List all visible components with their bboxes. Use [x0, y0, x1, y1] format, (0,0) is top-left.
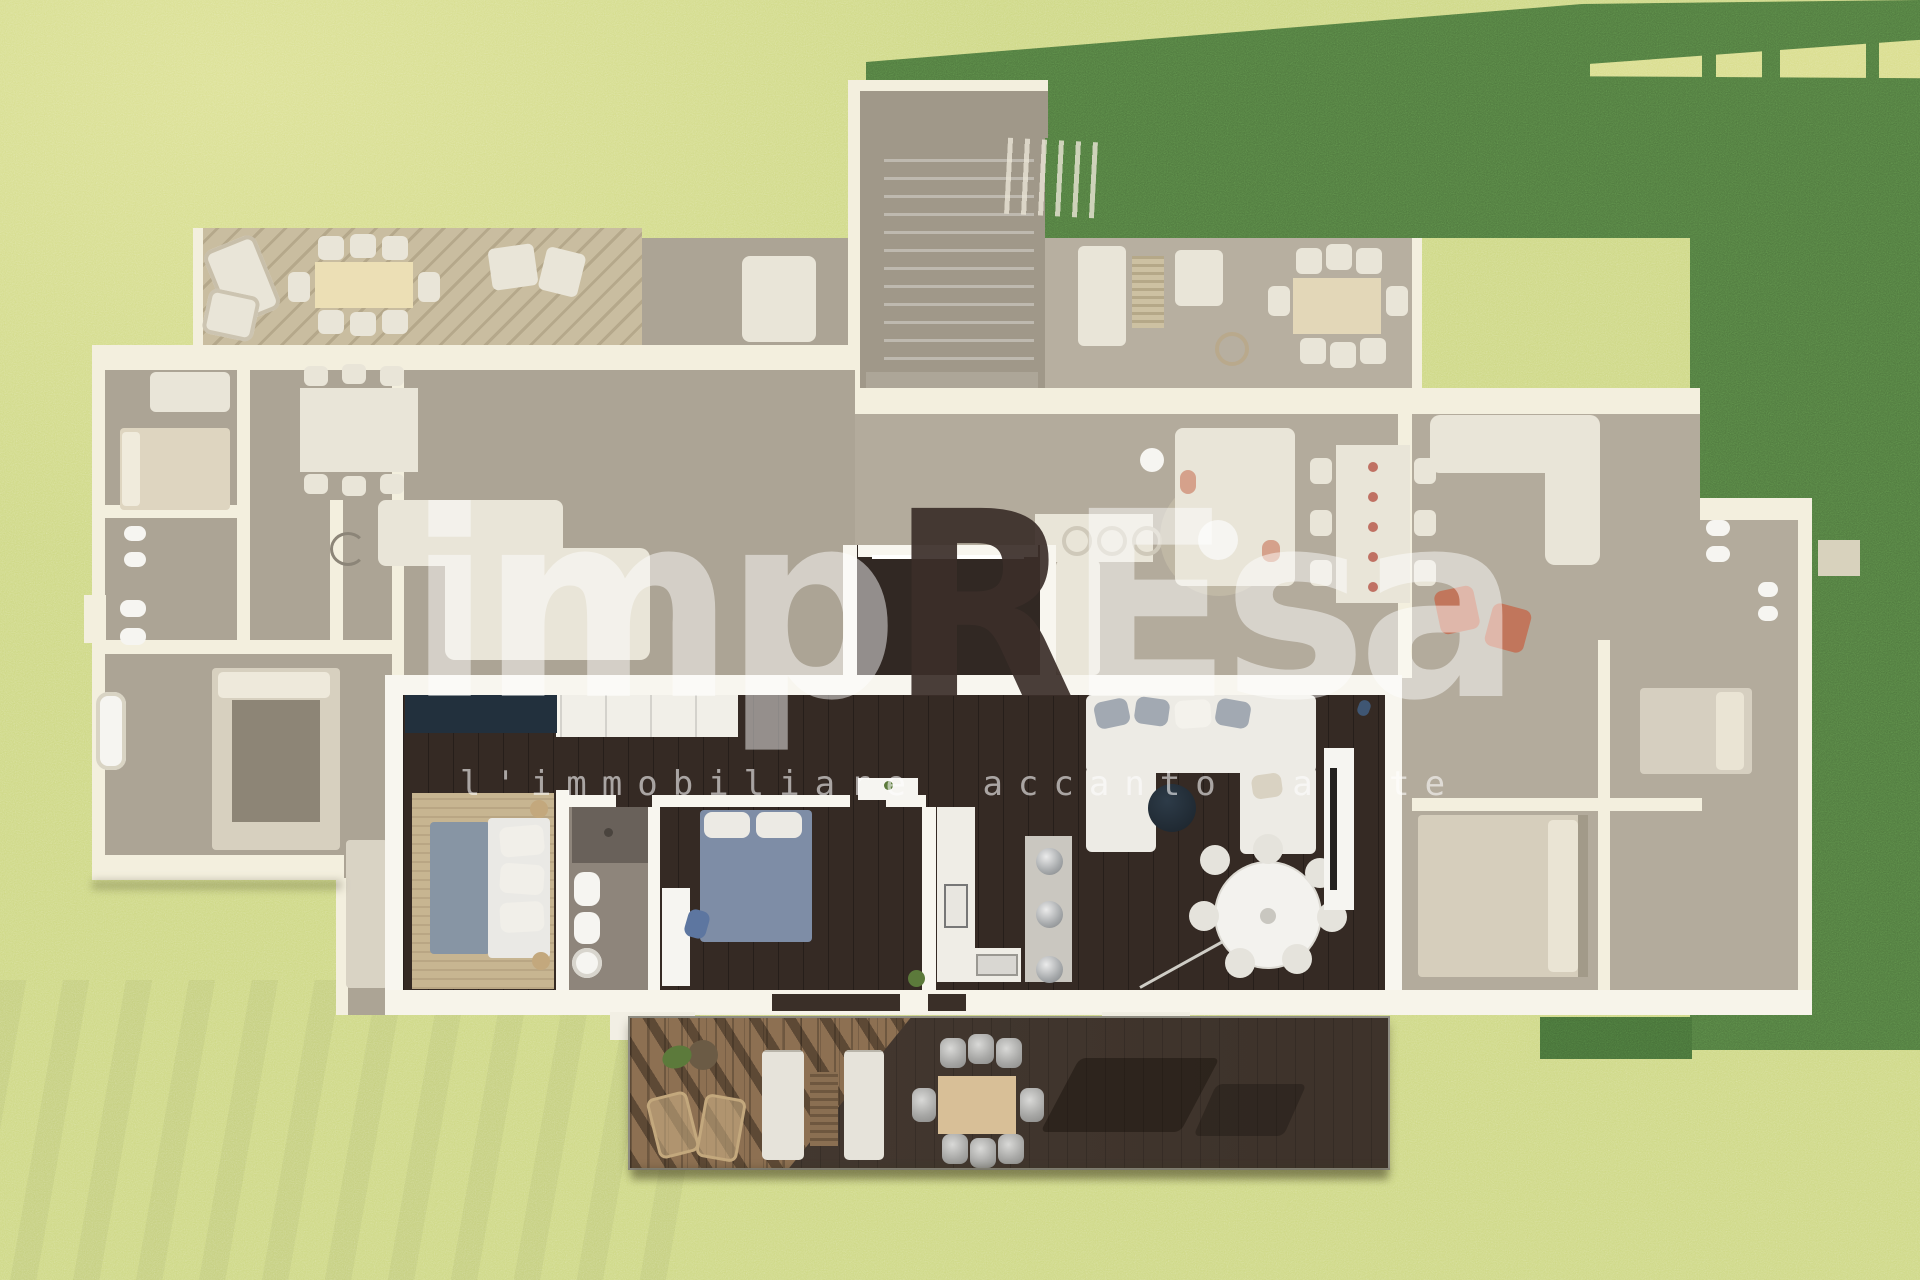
- left-wing-top-wall: [92, 345, 855, 370]
- unit-wall-bed2: [922, 807, 936, 992]
- bed2-pillow: [704, 812, 750, 838]
- rdeck-chair: [1360, 338, 1386, 364]
- lw-chair: [380, 366, 404, 386]
- watermark-brand: impREsa: [58, 478, 1863, 736]
- terrace-plant-pot: [688, 1040, 718, 1070]
- rdeck-chair: [1268, 286, 1290, 316]
- rdeck-armchair: [1175, 250, 1223, 306]
- terrace-chair: [970, 1138, 996, 1168]
- deck-chair: [382, 236, 408, 260]
- terrace-slat-table: [810, 1072, 838, 1146]
- lw-chair: [342, 364, 366, 384]
- rdeck-chair: [1326, 244, 1352, 270]
- rdeck-chair: [1356, 248, 1382, 274]
- brand-r: R: [889, 457, 1066, 757]
- rdeck-sofa: [1078, 246, 1126, 346]
- floorplan-render: impREsa l'immobiliare accanto a te: [0, 0, 1920, 1280]
- bathroom-bidet: [574, 912, 600, 944]
- master-bed-throw: [430, 822, 490, 954]
- deck-dining-table: [315, 262, 413, 308]
- dining-centerpiece: [1260, 908, 1276, 924]
- left-wing-bottom-wall: [92, 855, 344, 880]
- entry-bridge-edge: [848, 80, 1048, 91]
- rdeck-chair: [1386, 286, 1408, 316]
- mid-ghost-sofa: [742, 256, 816, 342]
- rdeck-slat-table: [1132, 256, 1164, 328]
- dining-chair: [1200, 845, 1230, 875]
- kitchen-hob: [944, 884, 968, 928]
- deck-chair: [318, 310, 344, 334]
- rdeck-chair: [1330, 342, 1356, 368]
- master-pillow: [499, 863, 545, 896]
- deck-chair: [382, 310, 408, 334]
- rw-bed1-pillows: [1548, 820, 1578, 972]
- bed2-plant: [908, 970, 925, 987]
- deck-chair: [350, 312, 376, 336]
- terrace-chair: [942, 1134, 968, 1164]
- terrace-chair: [968, 1034, 994, 1064]
- dining-chair: [1282, 944, 1312, 974]
- deck-chair: [318, 236, 344, 260]
- terrace-sofa: [844, 1050, 884, 1160]
- dining-chair: [1189, 901, 1219, 931]
- rdeck-side-table: [1215, 332, 1249, 366]
- bed2-pillow: [756, 812, 802, 838]
- terrace-chair: [940, 1038, 966, 1068]
- bed2-desk: [662, 888, 690, 986]
- deck-chair: [418, 272, 440, 302]
- rw-bed1-headboard: [1578, 815, 1588, 977]
- unit-wall-master2: [556, 790, 569, 992]
- brand-e: E: [1067, 457, 1223, 757]
- terrace-dining-table: [938, 1076, 1016, 1134]
- brand-sa: sa: [1223, 457, 1512, 757]
- master-pillow: [499, 824, 545, 858]
- lawn-shadow-terrace: [632, 1168, 1388, 1180]
- right-wing-top-wall: [855, 388, 1700, 414]
- left-deck-edge: [193, 228, 203, 347]
- bottom-door-gap2: [928, 994, 966, 1011]
- master-pillow: [499, 901, 545, 933]
- kitchen-stool: [1036, 901, 1063, 928]
- deck-chair: [350, 234, 376, 258]
- terrace-deck: [630, 1018, 1388, 1168]
- lw-wardrobe: [150, 372, 230, 412]
- kitchen-sink: [976, 954, 1018, 976]
- rdeck-chair: [1296, 248, 1322, 274]
- shower-drain: [604, 828, 613, 837]
- terrace-chair: [912, 1088, 936, 1122]
- terrace-sofa: [762, 1050, 804, 1160]
- kitchen-counter-v: [937, 807, 975, 957]
- unit-bottom-wall: [385, 990, 1812, 1015]
- watermark-tagline: l'immobiliare accanto a te: [0, 764, 1920, 804]
- dining-chair: [1253, 834, 1283, 864]
- bathroom-sink: [572, 948, 602, 978]
- lw-bed3: [346, 840, 388, 988]
- brand-imp: imp: [408, 457, 889, 757]
- terrace-chair: [998, 1134, 1024, 1164]
- bridge-left-wall: [848, 80, 860, 138]
- railing-bars: [1004, 138, 1098, 219]
- master-pouf: [532, 952, 550, 970]
- lw-chair: [304, 366, 328, 386]
- deck-chair: [288, 272, 310, 302]
- kitchen-stool: [1036, 956, 1063, 983]
- bottom-door-gap: [772, 994, 900, 1011]
- rdeck-chair: [1300, 338, 1326, 364]
- rdeck-edge: [1412, 238, 1422, 390]
- terrace-chair: [996, 1038, 1022, 1068]
- kitchen-stool: [1036, 848, 1063, 875]
- lw-dining-table: [300, 388, 418, 472]
- lawn-shadow-leftwing: [92, 880, 342, 890]
- dining-chair: [1225, 948, 1255, 978]
- deck-armchair: [487, 243, 538, 291]
- terrace-chair: [1020, 1088, 1044, 1122]
- unit-wall-bath: [648, 807, 660, 992]
- rdeck-dining-table: [1293, 278, 1381, 334]
- bathroom-toilet: [574, 872, 600, 906]
